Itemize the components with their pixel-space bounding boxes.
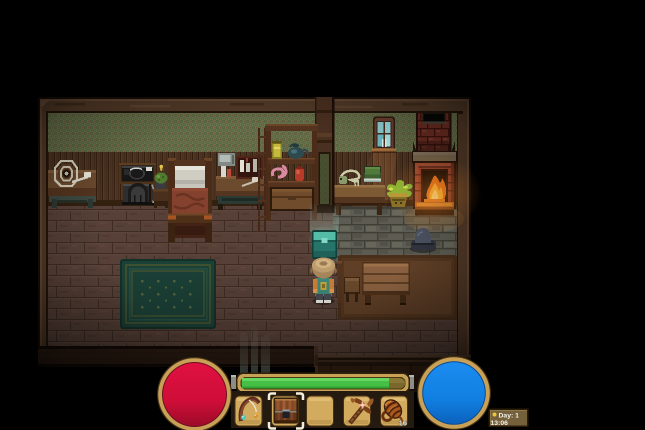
svg-text:Day: 1: Day: 1	[499, 413, 520, 420]
svg-text:16: 16	[399, 419, 407, 428]
svg-text:13:06: 13:06	[491, 420, 509, 427]
